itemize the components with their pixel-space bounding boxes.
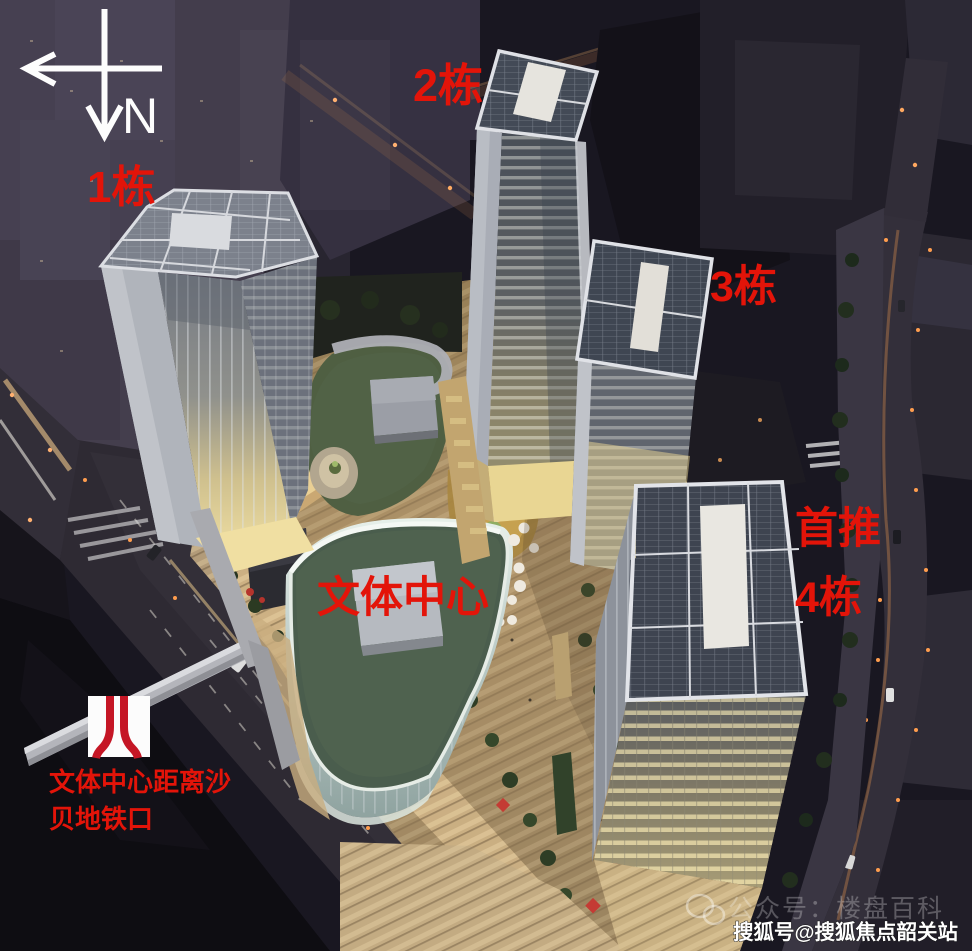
svg-text:公众号：楼盘百科: 公众号：楼盘百科: [728, 895, 944, 923]
svg-text:文体中心: 文体中心: [317, 574, 489, 622]
svg-text:首推: 首推: [795, 505, 881, 553]
svg-text:搜狐号@搜狐焦点韶关站: 搜狐号@搜狐焦点韶关站: [733, 920, 958, 944]
svg-text:贝地铁口: 贝地铁口: [49, 804, 153, 834]
svg-text:N: N: [122, 88, 158, 144]
svg-text:2栋: 2栋: [413, 60, 483, 111]
svg-text:1栋: 1栋: [87, 163, 155, 212]
svg-text:文体中心距离沙: 文体中心距离沙: [49, 767, 231, 797]
svg-text:4栋: 4栋: [795, 574, 862, 622]
svg-text:3栋: 3栋: [710, 263, 777, 311]
